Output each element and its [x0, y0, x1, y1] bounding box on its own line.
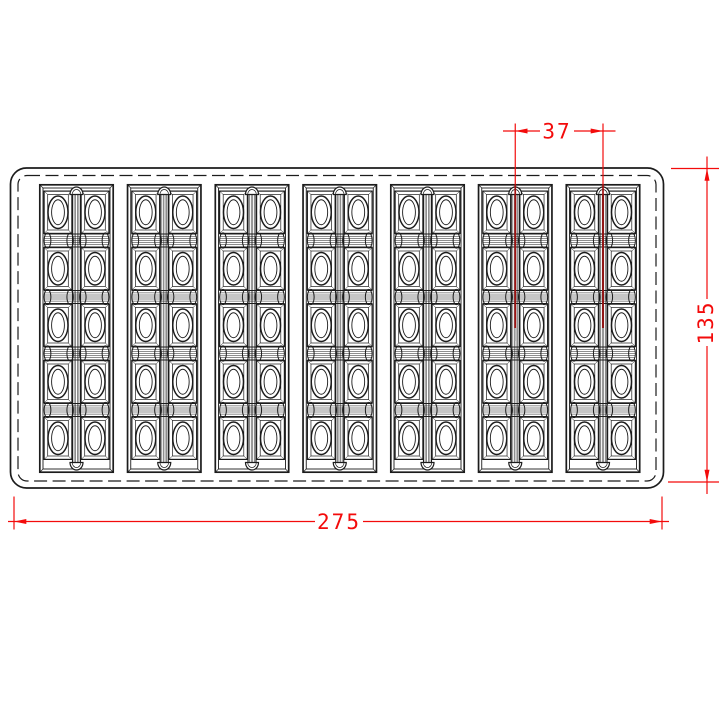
mold-bar-2 [128, 185, 201, 472]
arrowhead-top [705, 169, 710, 181]
arrowhead-left [14, 519, 26, 524]
dimension-overall-height: 135 [668, 157, 719, 495]
dimension-overall-width: 275 [8, 497, 669, 535]
dimension-label-width: 275 [317, 510, 361, 534]
arrowhead-left [515, 129, 527, 134]
drawing-canvas: 37 275 135 [0, 0, 720, 720]
dimension-bar-pitch: 37 [503, 120, 616, 185]
arrowhead-bottom [705, 470, 710, 482]
mold-bar-5 [391, 185, 464, 472]
mold-bar-4 [303, 185, 376, 472]
arrowhead-right [591, 129, 603, 134]
mold-tray-technical-drawing: 37 275 135 [0, 0, 720, 720]
arrowhead-right [650, 519, 662, 524]
dimension-label-height: 135 [694, 301, 718, 345]
mold-tray [11, 168, 664, 488]
mold-bar-3 [215, 185, 288, 472]
mold-bar-1 [40, 185, 113, 472]
dimension-label-pitch: 37 [542, 120, 571, 144]
